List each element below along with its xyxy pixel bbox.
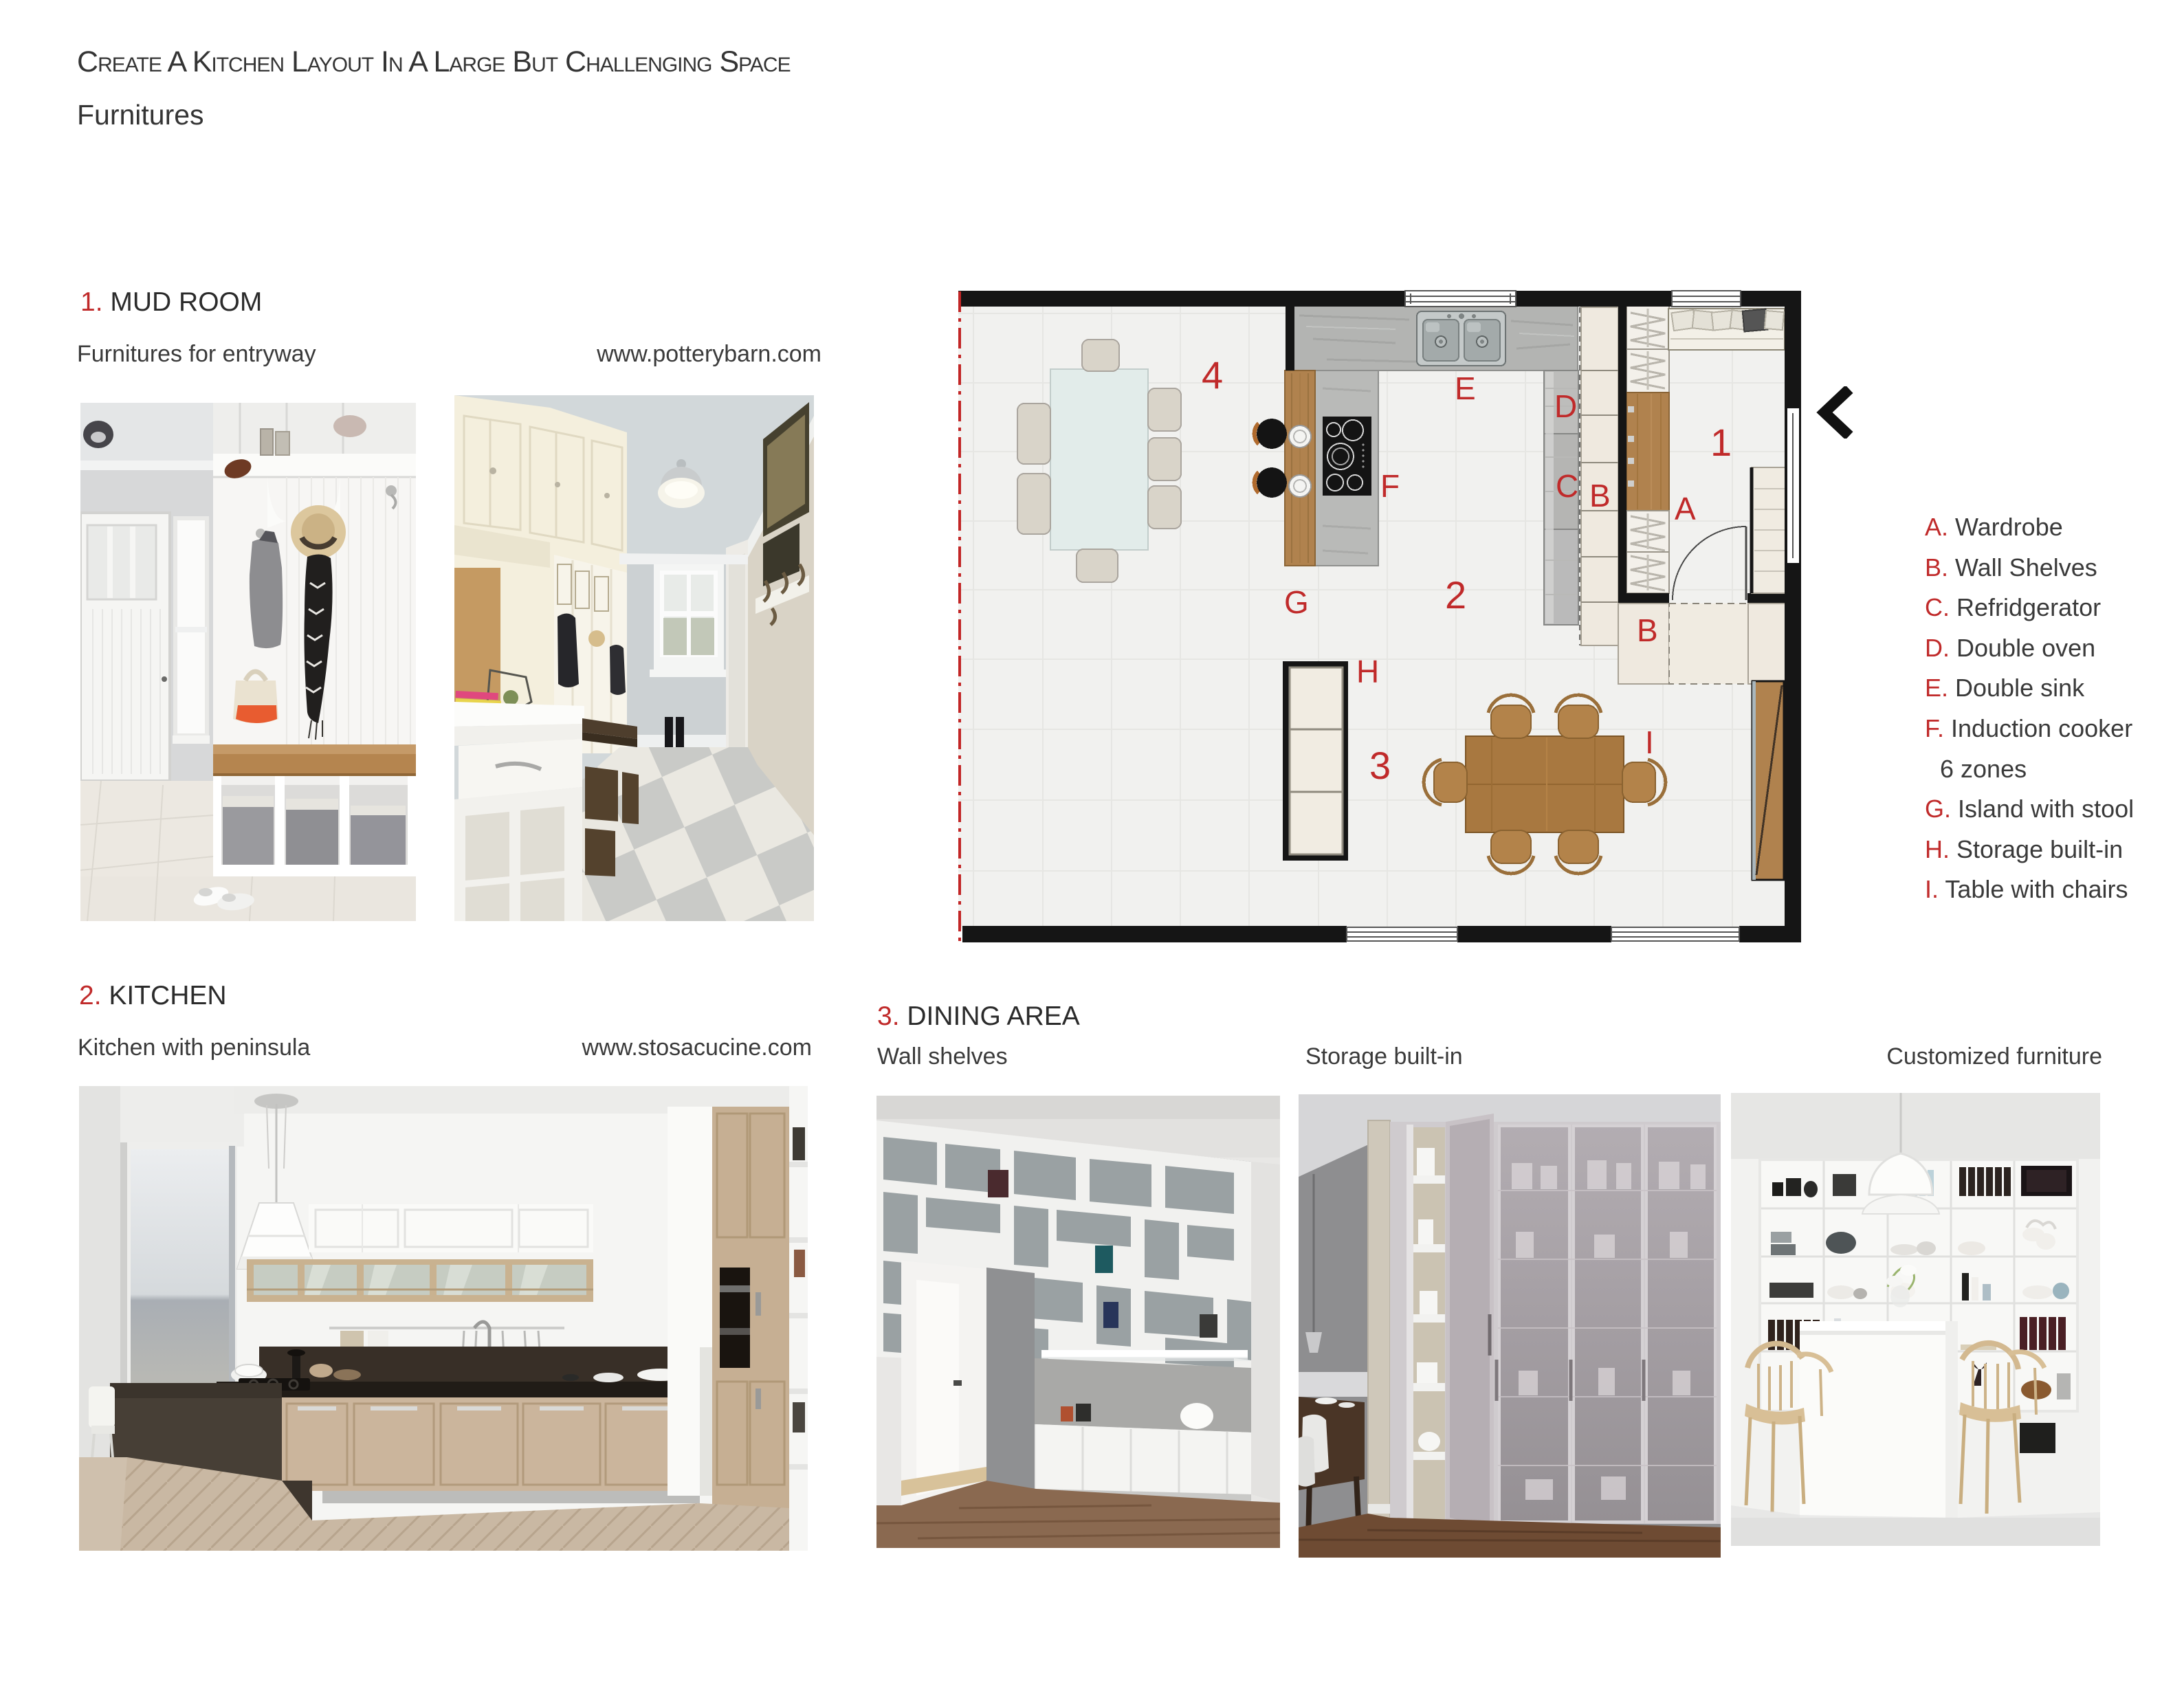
svg-text:E: E	[1455, 370, 1476, 406]
svg-text:F: F	[1380, 468, 1400, 504]
svg-text:B: B	[1589, 478, 1611, 513]
svg-text:G: G	[1284, 584, 1309, 620]
svg-text:D: D	[1554, 388, 1577, 424]
svg-text:H: H	[1356, 654, 1379, 689]
svg-text:3: 3	[1369, 744, 1391, 787]
svg-text:A: A	[1675, 491, 1696, 527]
svg-text:4: 4	[1202, 353, 1223, 397]
svg-text:I: I	[1645, 724, 1654, 760]
svg-text:1: 1	[1710, 421, 1732, 464]
svg-text:C: C	[1556, 468, 1578, 504]
svg-text:B: B	[1637, 612, 1658, 648]
svg-text:2: 2	[1445, 573, 1466, 617]
